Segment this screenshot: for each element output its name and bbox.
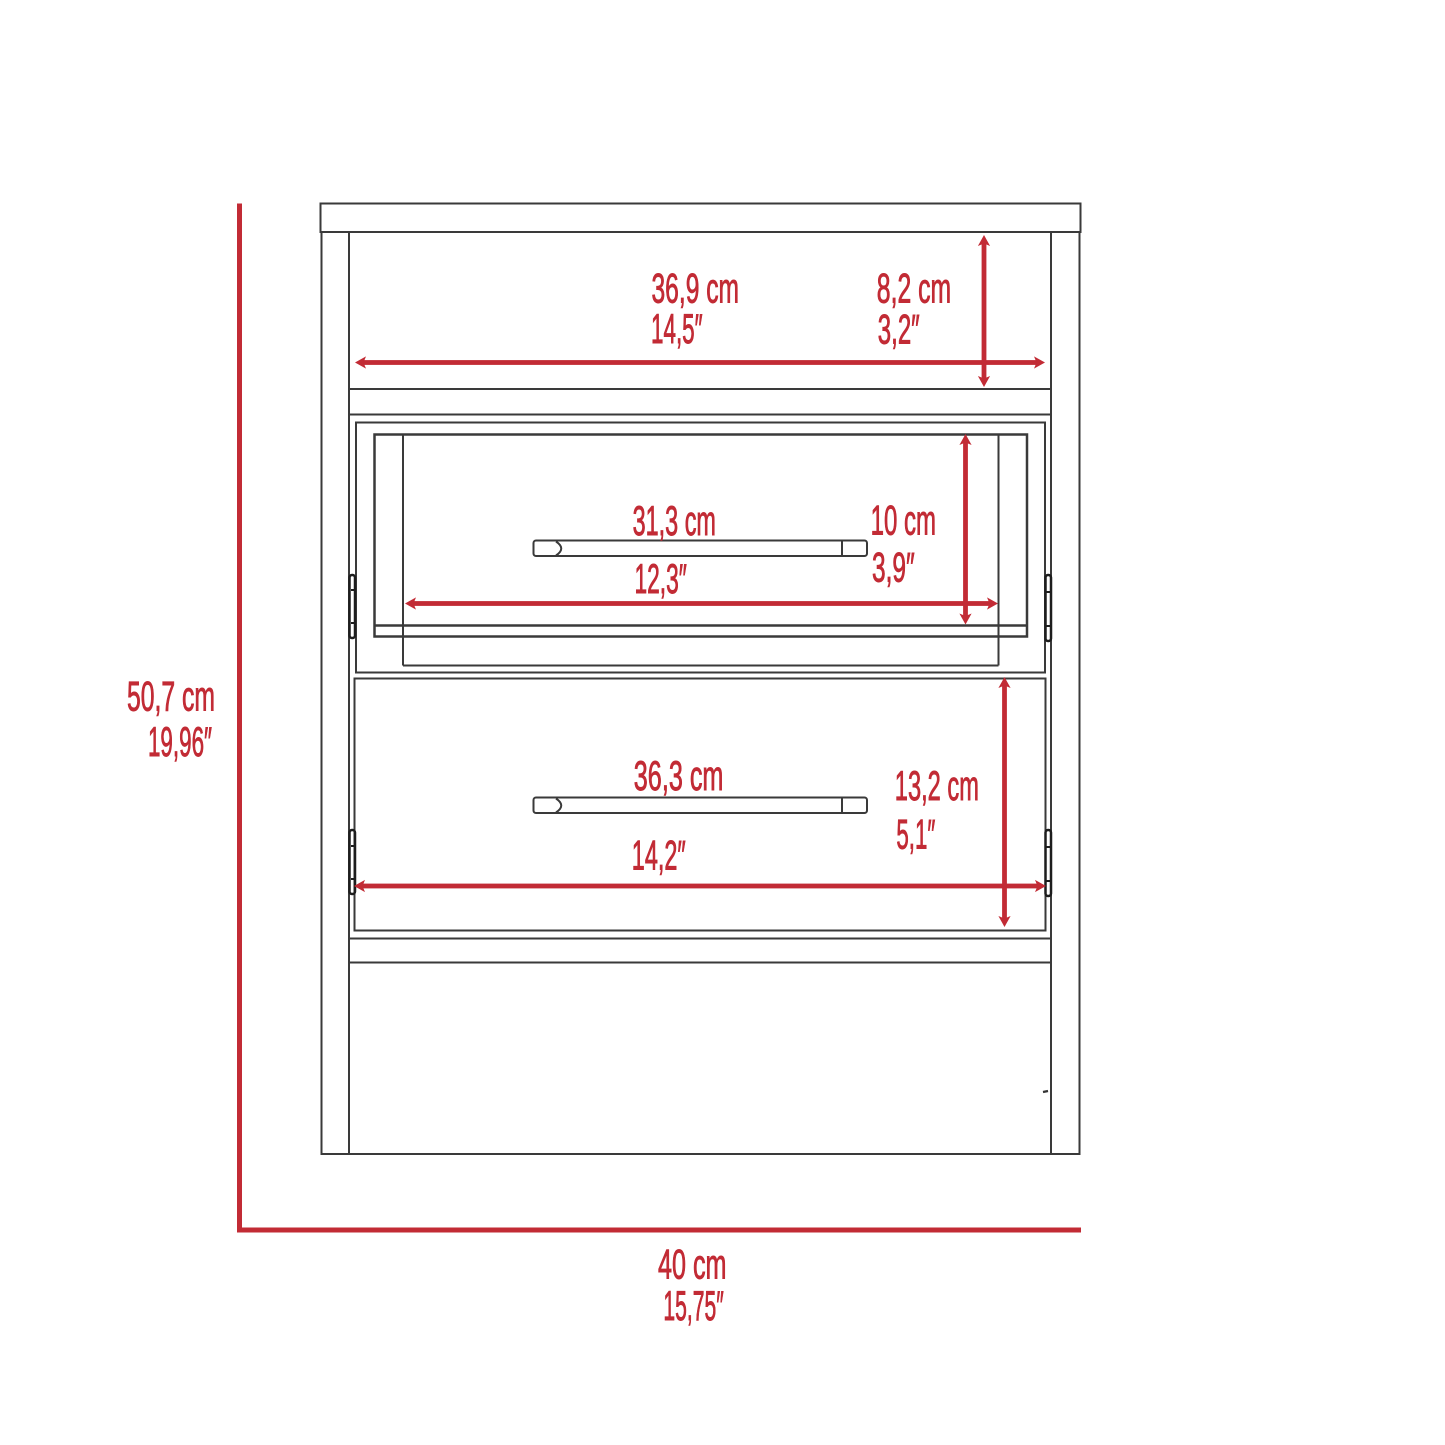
svg-text:13,2 cm: 13,2 cm [895,763,979,810]
svg-text:10 cm: 10 cm [871,498,936,545]
svg-text:12,3″: 12,3″ [635,556,687,603]
svg-text:3,9″: 3,9″ [872,545,915,591]
svg-text:15,75″: 15,75″ [663,1283,723,1330]
svg-text:3,2″: 3,2″ [878,307,920,354]
svg-text:19,96″: 19,96″ [148,720,212,766]
svg-text:14,2″: 14,2″ [632,832,686,879]
svg-text:50,7 cm: 50,7 cm [127,674,215,720]
svg-text:36,3 cm: 36,3 cm [634,754,724,800]
svg-text:31,3 cm: 31,3 cm [633,498,716,545]
svg-text:14,5″: 14,5″ [651,307,703,353]
svg-text:40 cm: 40 cm [658,1242,726,1288]
svg-text:5,1″: 5,1″ [896,812,935,858]
svg-text:36,9 cm: 36,9 cm [652,266,740,312]
svg-text:8,2 cm: 8,2 cm [877,266,951,312]
